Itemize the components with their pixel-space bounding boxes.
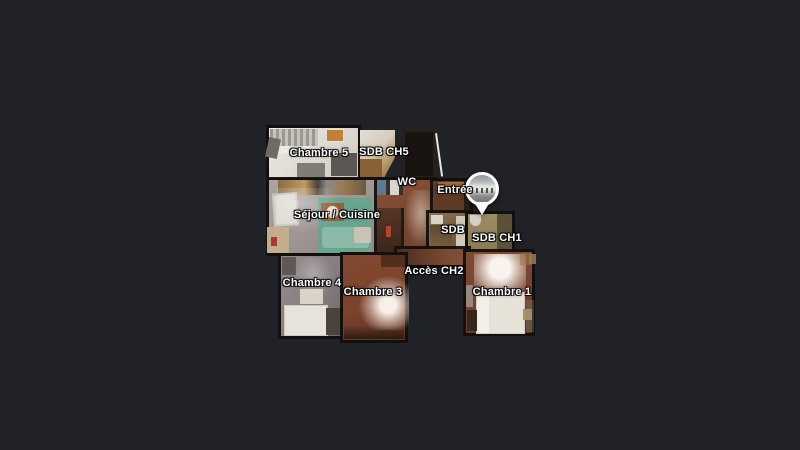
sink [431,215,443,224]
wardrobe [282,257,296,275]
balcony-detail [526,300,534,332]
dark-corner [467,310,477,331]
room-label-chambre3: Chambre 3 [344,286,403,298]
pin-tip [474,202,490,215]
floorplan-canvas[interactable]: Chambre 5 SDB CH5 WC Entrée Séjour / Cui… [0,0,800,450]
room-wc[interactable] [405,132,433,176]
vanity [360,159,382,177]
dark-corner [326,308,341,335]
room-label-chambre5: Chambre 5 [290,147,349,159]
room-label-chambre4: Chambre 4 [283,277,342,289]
bed [476,292,525,334]
dark-furniture [344,325,404,339]
room-label-sdb-ch1: SDB CH1 [472,232,522,244]
room-label-entree: Entrée [437,184,472,196]
room-label-wc: WC [398,176,417,188]
red-item [271,237,277,246]
dark-corner [381,255,405,267]
room-hallway[interactable] [377,180,433,254]
room-label-sdb: SDB [441,224,465,236]
room-label-acces-ch2: Accès CH2 [404,265,463,277]
bed [284,305,328,336]
building-windows-detail [471,188,493,193]
rug-panel [300,289,323,304]
cabinet [267,227,289,253]
room-label-sdb-ch5: SDB CH5 [359,146,409,158]
balcony-detail [529,254,536,264]
wall-divider [401,208,404,254]
room-label-chambre1: Chambre 1 [473,286,532,298]
corridor-acces-ch2[interactable] [397,249,468,265]
room-label-sejour-cuisine: Séjour / Cuisine [294,209,380,221]
extinguisher [386,226,391,237]
room-chambre4[interactable] [281,256,341,336]
chair [265,137,281,159]
tour-viewport: Chambre 5 SDB CH5 WC Entrée Séjour / Cui… [0,0,800,450]
light-flare [357,275,409,330]
wc-leader-line [435,133,443,177]
side-table [354,227,371,243]
wall-art [326,129,344,142]
dresser [297,163,325,177]
